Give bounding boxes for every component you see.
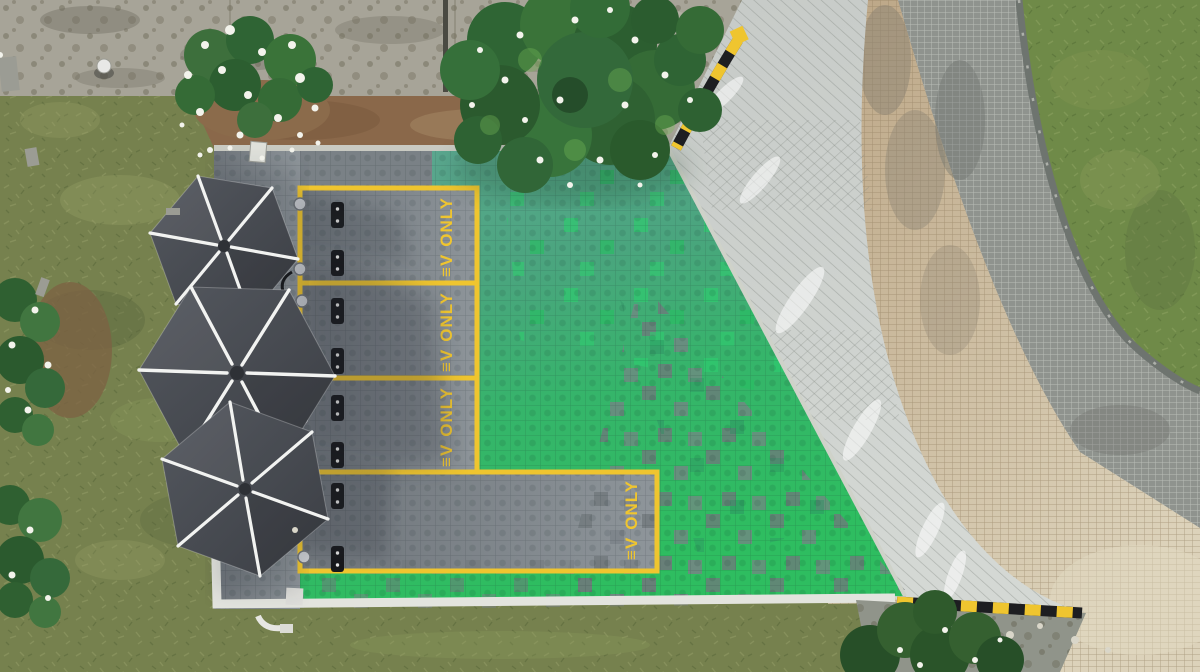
ev-only-marking-1: ≡VONLY xyxy=(437,197,456,277)
ev-only-marking-4: ≡VONLY xyxy=(622,480,641,560)
utility-box xyxy=(249,141,267,162)
paver-stain xyxy=(935,60,985,180)
walkway-scoring-alt xyxy=(700,120,872,210)
paver-stain xyxy=(1070,405,1170,455)
aerial-photo-ev-parking: ≡VONLY ≡VONLY ≡VONLY ≡VONLY xyxy=(0,0,1200,672)
ground-marker xyxy=(166,208,180,215)
ev-only-marking-2: ≡VONLY xyxy=(437,292,456,372)
scene-canvas: ≡VONLY ≡VONLY ≡VONLY ≡VONLY xyxy=(0,0,1200,672)
tree-center xyxy=(552,77,588,113)
canopy-hub xyxy=(230,366,244,380)
bottom-grass-strip xyxy=(150,603,897,672)
bollard-light xyxy=(97,59,111,73)
canopy-hub xyxy=(218,240,230,252)
pebble xyxy=(292,527,298,533)
white-tile xyxy=(286,588,304,606)
drain-pipe-end xyxy=(280,624,293,633)
canopy-hub xyxy=(239,483,251,495)
